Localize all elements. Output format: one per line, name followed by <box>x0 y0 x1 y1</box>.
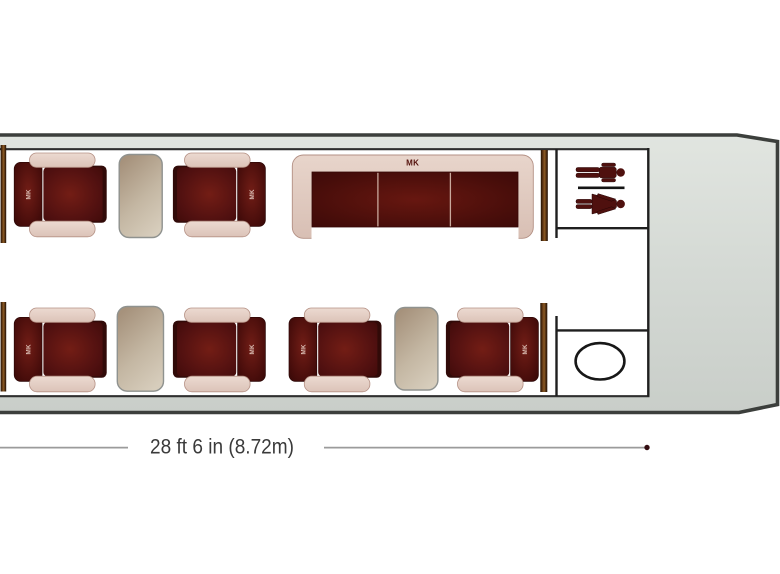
svg-text:MK: MK <box>406 159 419 168</box>
svg-text:MK: MK <box>26 344 33 355</box>
svg-text:MK: MK <box>300 344 307 355</box>
svg-text:MK: MK <box>26 189 33 200</box>
svg-text:MK: MK <box>249 189 256 200</box>
svg-text:MK: MK <box>522 344 529 355</box>
svg-text:MK: MK <box>249 344 256 355</box>
svg-text:28 ft 6 in (8.72m): 28 ft 6 in (8.72m) <box>150 435 294 459</box>
